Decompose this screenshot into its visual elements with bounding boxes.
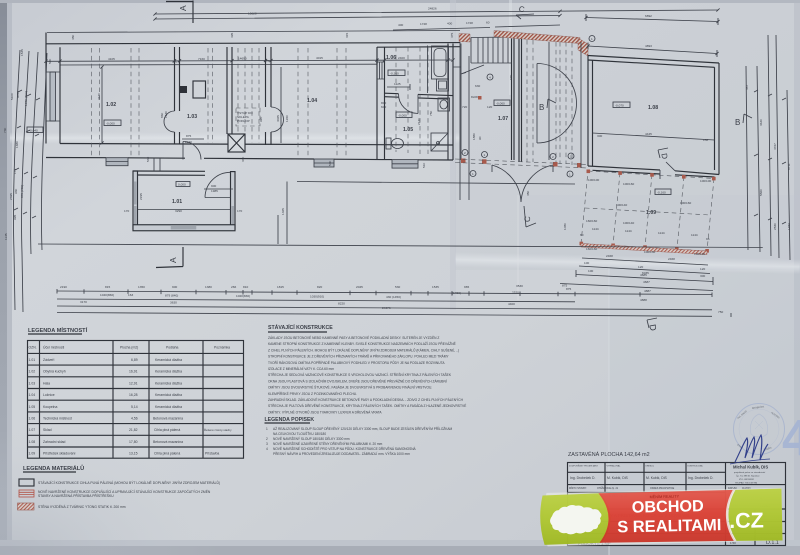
svg-text:160/160: 160/160 (586, 247, 597, 251)
svg-text:Hala: Hala (43, 381, 50, 385)
svg-text:1.04: 1.04 (29, 393, 36, 397)
svg-text:NOVĚ NAVRŽENÉ UZAVŘENÉ STĚNY D: NOVĚ NAVRŽENÉ UZAVŘENÉ STĚNY DŘEVĚNÝMI P… (273, 441, 383, 446)
svg-text:2045: 2045 (356, 285, 363, 289)
svg-text:Podlaha: Podlaha (166, 346, 179, 350)
svg-text:1.09: 1.09 (29, 452, 36, 456)
svg-text:1.07: 1.07 (29, 428, 36, 432)
svg-text:2190: 2190 (60, 285, 67, 289)
svg-text:4445: 4445 (645, 132, 652, 136)
svg-text:266: 266 (231, 285, 236, 289)
svg-text:4: 4 (489, 76, 491, 80)
svg-text:NOVĚ NAVRŽENÉ SCHODIŠTĚ PRO VS: NOVĚ NAVRŽENÉ SCHODIŠTĚ PRO VSTUP NA PŮD… (273, 446, 417, 451)
svg-text:12,91: 12,91 (129, 381, 138, 385)
svg-text:300: 300 (597, 134, 602, 138)
svg-text:1680: 1680 (15, 141, 19, 148)
svg-text:KLEMPÍŘSKÉ PRVKY JSOU Z POZINK: KLEMPÍŘSKÉ PRVKY JSOU Z POZINKOVANÉHO PL… (268, 391, 357, 396)
svg-text:870 (780): 870 (780) (20, 185, 24, 198)
svg-text:15020: 15020 (248, 12, 257, 16)
svg-text:KAMENE STROPNÍ KONSTRUKCE Z KA: KAMENE STROPNÍ KONSTRUKCE Z KAMENNÉ KLEN… (268, 341, 457, 346)
svg-text:3530: 3530 (516, 284, 523, 288)
svg-text:4687: 4687 (643, 280, 650, 284)
svg-text:B: B (735, 118, 740, 127)
svg-text:NA CELKOVOU TLOUŠŤKU 180/180: NA CELKOVOU TLOUŠŤKU 180/180 (273, 431, 326, 436)
svg-text:3630: 3630 (170, 301, 177, 305)
svg-text:3640: 3640 (759, 119, 763, 126)
svg-text:1080: 1080 (563, 223, 567, 230)
svg-text:POKLOP: POKLOP (237, 119, 250, 123)
svg-text:6,89: 6,89 (131, 358, 138, 362)
svg-text:1.02: 1.02 (29, 370, 36, 374)
svg-text:1.03: 1.03 (187, 114, 197, 120)
svg-text:1350: 1350 (138, 285, 145, 289)
svg-text:1.04: 1.04 (307, 98, 317, 104)
svg-text:4893: 4893 (645, 44, 652, 48)
svg-text:-0,160: -0,160 (657, 191, 666, 195)
svg-text:IZOLACE Z MINERÁLNÍ VATY tl. C: IZOLACE Z MINERÁLNÍ VATY tl. CCA 60 mm (268, 367, 334, 371)
svg-text:1.07: 1.07 (498, 116, 508, 122)
svg-text:163: 163 (128, 293, 133, 297)
svg-text:C: C (523, 216, 532, 223)
svg-text:100: 100 (584, 261, 589, 265)
svg-text:Keramická dlažba: Keramická dlažba (155, 381, 182, 385)
svg-text:1815: 1815 (277, 285, 284, 289)
svg-text:OBCHOD: OBCHOD (632, 497, 705, 517)
svg-text:60: 60 (486, 21, 490, 25)
svg-text:995: 995 (13, 215, 17, 220)
svg-text:Zádveří: Zádveří (43, 358, 55, 362)
svg-text:B: B (539, 103, 544, 112)
svg-text:480: 480 (71, 35, 75, 40)
svg-text:13,15: 13,15 (129, 452, 138, 456)
svg-text:1: 1 (472, 172, 474, 176)
svg-text:Plocha (m2): Plocha (m2) (120, 346, 138, 350)
svg-text:-0,360: -0,360 (390, 72, 399, 76)
svg-text:NOVĚ NAVRŽENÝ SLOUP 180/180 DÉ: NOVĚ NAVRŽENÝ SLOUP 180/180 DÉLKY 3300 m… (273, 436, 350, 441)
svg-text:1.09: 1.09 (646, 210, 656, 216)
svg-text:1: 1 (569, 173, 571, 177)
svg-text:OZN.: OZN. (29, 346, 37, 350)
svg-text:100/140: 100/140 (623, 221, 634, 225)
svg-text:16,28: 16,28 (129, 393, 138, 397)
svg-text:Betonová mazanina: Betonová mazanina (153, 417, 183, 421)
svg-text:1144: 1144 (658, 231, 665, 235)
svg-text:1545: 1545 (20, 49, 24, 56)
svg-text:ZASTAVĚNÁ PLOCHA 142,64 m2: ZASTAVĚNÁ PLOCHA 142,64 m2 (568, 450, 650, 458)
svg-text:Keramická dlažba: Keramická dlažba (155, 393, 182, 397)
svg-text:ZODPOVĚDNÝ PROJEKTANT: ZODPOVĚDNÝ PROJEKTANT (569, 465, 598, 468)
svg-text:M. Kubík, DiS: M. Kubík, DiS (607, 476, 628, 480)
svg-text:M. Kubík, DiS: M. Kubík, DiS (646, 476, 667, 480)
svg-text:Čp. 74, 398 51 Sepekov: Čp. 74, 398 51 Sepekov (736, 475, 760, 478)
svg-text:630: 630 (509, 75, 513, 80)
svg-text:100/100: 100/100 (700, 179, 711, 183)
svg-text:1.01: 1.01 (172, 199, 182, 205)
svg-text:5100: 5100 (10, 93, 14, 100)
svg-text:projektová práce ve stavebnict: projektová práce ve stavebnictví (734, 471, 766, 474)
svg-text:(1450): (1450) (452, 291, 461, 295)
svg-text:16,91: 16,91 (129, 370, 138, 374)
svg-text:750: 750 (718, 310, 723, 314)
svg-text:LEGENDA MATERIÁLŮ: LEGENDA MATERIÁLŮ (23, 464, 84, 472)
svg-text:4: 4 (782, 409, 800, 466)
svg-text:Řešené změny stavby: Řešené změny stavby (204, 427, 232, 432)
svg-text:100: 100 (588, 269, 593, 273)
svg-text:.CZ: .CZ (729, 508, 764, 533)
svg-text:5,14: 5,14 (131, 405, 138, 409)
svg-text:170: 170 (124, 209, 129, 213)
svg-text:160/160: 160/160 (586, 219, 597, 223)
svg-text:3170: 3170 (80, 300, 87, 304)
svg-text:1144: 1144 (691, 233, 698, 237)
svg-text:Michal Kubík, DiS: Michal Kubík, DiS (733, 465, 768, 470)
svg-text:900: 900 (172, 285, 177, 289)
svg-text:4105: 4105 (108, 57, 115, 61)
svg-text:Technická místnost: Technická místnost (43, 417, 72, 421)
svg-text:VYPRACOVAL: VYPRACOVAL (607, 465, 622, 468)
svg-text:875: 875 (566, 287, 571, 291)
svg-text:1465: 1465 (281, 208, 285, 215)
svg-text:2140: 2140 (417, 118, 421, 125)
svg-text:D.1.1: D.1.1 (766, 540, 779, 546)
svg-text:2468: 2468 (668, 257, 675, 261)
svg-text:4065: 4065 (276, 115, 280, 122)
svg-text:STĚNA VYZDĚNÁ Z TVÁRNIC YTONG: STĚNA VYZDĚNÁ Z TVÁRNIC YTONG STATIK tl.… (38, 504, 126, 509)
svg-text:Keramická dlažba: Keramická dlažba (155, 358, 182, 362)
svg-text:-0,000: -0,000 (398, 114, 407, 118)
svg-text:8711: 8711 (787, 163, 791, 170)
svg-text:1: 1 (570, 155, 572, 159)
svg-text:400: 400 (447, 22, 452, 26)
svg-text:120: 120 (700, 267, 705, 271)
svg-text:9055: 9055 (16, 91, 20, 98)
svg-text:2040: 2040 (185, 140, 192, 144)
svg-text:1728: 1728 (420, 22, 427, 26)
svg-text:1: 1 (266, 427, 268, 431)
svg-text:Z CIHEL PLNÝCH PÁLENÝCH. MOHOU: Z CIHEL PLNÝCH PÁLENÝCH. MOHOU BÝT LOKÁL… (268, 347, 459, 352)
svg-text:1.08: 1.08 (29, 440, 36, 444)
svg-text:AŽ REALIZOVANÝ SLOUP SLOUP DŘE: AŽ REALIZOVANÝ SLOUP SLOUP DŘEVĚNÝ 120/1… (273, 426, 452, 431)
svg-text:530: 530 (328, 161, 332, 166)
svg-text:900: 900 (211, 184, 216, 188)
svg-text:1.01: 1.01 (29, 358, 36, 362)
svg-text:1380: 1380 (205, 285, 212, 289)
svg-text:530: 530 (146, 157, 150, 162)
svg-text:TVOŘÍ RÁKOSOVÁ OMÍTKA POPŘÍPAD: TVOŘÍ RÁKOSOVÁ OMÍTKA POPŘÍPADĚ PALUBKOV… (268, 360, 445, 365)
svg-text:1370 (800): 1370 (800) (24, 91, 28, 106)
svg-text:4: 4 (266, 447, 268, 451)
svg-text:1880: 1880 (472, 133, 476, 140)
svg-text:4,56: 4,56 (131, 417, 138, 421)
svg-text:1125: 1125 (394, 82, 401, 86)
svg-text:530: 530 (395, 285, 400, 289)
svg-text:3: 3 (266, 442, 268, 446)
svg-text:820: 820 (317, 285, 322, 289)
svg-text:120: 120 (487, 105, 492, 109)
svg-text:2395: 2395 (9, 193, 13, 200)
svg-text:1728: 1728 (466, 21, 473, 25)
svg-text:750: 750 (429, 111, 433, 116)
svg-text:2520: 2520 (512, 291, 519, 295)
svg-text:-0,040: -0,040 (29, 129, 38, 133)
svg-text:Zahradní sklad: Zahradní sklad (43, 440, 66, 444)
svg-text:OKRES PRACHATICE: OKRES PRACHATICE (650, 487, 675, 490)
svg-text:21,82: 21,82 (129, 428, 138, 432)
svg-text:495: 495 (230, 33, 234, 38)
svg-text:LEGENDA MÍSTNOSTÍ: LEGENDA MÍSTNOSTÍ (28, 326, 88, 334)
svg-text:14690: 14690 (238, 57, 247, 61)
svg-text:90: 90 (478, 136, 482, 140)
svg-text:STÁVAJÍCÍ KONSTRUKCE CIHLA PLN: STÁVAJÍCÍ KONSTRUKCE CIHLA PLNÁ PÁLENÁ (… (38, 480, 220, 485)
svg-text:1: 1 (591, 37, 593, 41)
svg-text:8x08: 8x08 (471, 95, 478, 99)
svg-text:Účel místnosti: Účel místnosti (43, 345, 65, 350)
svg-text:4888: 4888 (640, 298, 647, 302)
svg-text:2295: 2295 (139, 193, 143, 200)
svg-text:100/130: 100/130 (644, 250, 655, 254)
svg-text:160: 160 (172, 60, 177, 64)
svg-text:4015: 4015 (316, 56, 323, 60)
svg-text:100/160: 100/160 (680, 201, 691, 205)
svg-text:2830: 2830 (773, 223, 777, 230)
svg-text:1040(860): 1040(860) (100, 293, 114, 297)
svg-text:Keramická dlažba: Keramická dlažba (155, 370, 182, 374)
svg-text:4120: 4120 (97, 93, 101, 100)
svg-text:TEL/FAX: 736 158 994: TEL/FAX: 736 158 994 (735, 482, 758, 485)
svg-text:1144: 1144 (592, 227, 599, 231)
svg-text:6035: 6035 (642, 271, 649, 275)
svg-text:4400: 4400 (508, 302, 515, 306)
svg-text:720: 720 (462, 105, 467, 109)
svg-text:2: 2 (464, 151, 466, 155)
svg-text:980: 980 (375, 58, 379, 63)
svg-text:815: 815 (105, 285, 110, 289)
svg-text:150: 150 (703, 138, 708, 142)
svg-text:600: 600 (381, 105, 386, 109)
svg-text:170: 170 (237, 209, 242, 213)
svg-text:300: 300 (700, 274, 705, 278)
svg-text:-0,060: -0,060 (496, 102, 505, 106)
svg-text:0,000: 0,000 (178, 183, 186, 187)
svg-text:875: 875 (186, 134, 191, 138)
svg-text:2468: 2468 (606, 254, 613, 258)
svg-text:OKNA JSOU PLASTOVÁ S IZOLAČNÍM: OKNA JSOU PLASTOVÁ S IZOLAČNÍM DVOJSKLEM… (268, 378, 447, 383)
svg-text:17,80: 17,80 (129, 440, 138, 444)
svg-text:OMÍTKY. VÝPLNĚ OTVORŮ JSOU TVA: OMÍTKY. VÝPLNĚ OTVORŮ JSOU TVAROVKY LUXF… (268, 409, 382, 414)
svg-text:1: 1 (484, 153, 486, 157)
svg-text:A: A (178, 5, 188, 11)
svg-text:1030(910): 1030(910) (310, 295, 324, 299)
svg-text:810: 810 (243, 285, 248, 289)
svg-text:Koupelna: Koupelna (43, 405, 57, 409)
svg-text:1260: 1260 (285, 115, 289, 122)
svg-text:500: 500 (48, 59, 52, 64)
svg-text:100/140: 100/140 (616, 203, 627, 207)
svg-text:Poznámka: Poznámka (214, 346, 230, 350)
svg-text:Přístřešek skladování: Přístřešek skladování (43, 452, 75, 456)
svg-text:1.05: 1.05 (403, 127, 413, 133)
svg-text:ZAHRADNÍ SKLAD. ZÁKLADOVÉ KONS: ZAHRADNÍ SKLAD. ZÁKLADOVÉ KONSTRUKCE BET… (268, 397, 464, 402)
svg-text:24826: 24826 (428, 7, 437, 11)
svg-text:1144: 1144 (625, 229, 632, 233)
svg-text:Cihla plná pálená: Cihla plná pálená (154, 428, 180, 432)
svg-text:Sklad: Sklad (43, 428, 52, 432)
svg-text:100/100: 100/100 (694, 252, 705, 256)
svg-text:475: 475 (450, 33, 454, 38)
svg-text:24376: 24376 (382, 306, 391, 310)
svg-text:1.03: 1.03 (29, 381, 36, 385)
svg-text:100/100: 100/100 (588, 178, 599, 182)
svg-text:Ložnice: Ložnice (43, 393, 55, 397)
svg-text:4767: 4767 (773, 143, 777, 150)
svg-text:OMÍTKY JSOU DVOUVRSTVÉ ŠTUKOVÉ: OMÍTKY JSOU DVOUVRSTVÉ ŠTUKOVÉ. FASÁDA J… (268, 385, 432, 390)
svg-text:STROPNÍ KONSTRUKCE JE Z DŘEVĚN: STROPNÍ KONSTRUKCE JE Z DŘEVĚNÝCH PŘIZNA… (268, 354, 449, 359)
svg-text:1.06: 1.06 (386, 55, 396, 61)
svg-text:315: 315 (345, 33, 349, 38)
svg-text:IČO: 09210932: IČO: 09210932 (739, 478, 755, 481)
svg-text:Cihla plná pálená: Cihla plná pálená (154, 452, 180, 456)
svg-text:PŘESNÝ NÁVRH A PROVEDENÍ ZREAL: PŘESNÝ NÁVRH A PROVEDENÍ ZREALIZUJE DODA… (273, 451, 410, 456)
svg-text:KRESLIL: KRESLIL (646, 466, 655, 468)
svg-text:Přístavba: Přístavba (205, 452, 219, 456)
svg-text:430 (1450): 430 (1450) (386, 295, 401, 299)
svg-text:60: 60 (580, 233, 584, 237)
svg-text:A: A (168, 257, 178, 263)
svg-text:STŘECHA JE PULTOVÁ DŘEVĚNÉ KON: STŘECHA JE PULTOVÁ DŘEVĚNÉ KONSTRUKCE, K… (268, 403, 467, 408)
svg-text:1.05: 1.05 (29, 405, 36, 409)
svg-text:400: 400 (398, 23, 403, 27)
svg-text:1985: 1985 (211, 189, 218, 193)
svg-text:630: 630 (475, 84, 480, 88)
svg-text:330: 330 (241, 157, 245, 162)
svg-text:LEGENDA POPISEK: LEGENDA POPISEK (265, 417, 315, 423)
svg-text:Betonová mazanina: Betonová mazanina (153, 440, 183, 444)
svg-text:1640: 1640 (164, 111, 168, 118)
svg-text:2: 2 (266, 437, 268, 441)
svg-text:Ing. Drobeček D.: Ing. Drobeček D. (688, 476, 713, 480)
svg-text:8220: 8220 (338, 302, 345, 306)
svg-text:879 (840): 879 (840) (165, 294, 178, 298)
svg-text:2: 2 (552, 155, 554, 159)
svg-text:1.02: 1.02 (106, 102, 116, 108)
svg-text:1.08: 1.08 (648, 105, 658, 111)
svg-text:Obytná kuchyň: Obytná kuchyň (43, 370, 66, 374)
svg-text:170: 170 (264, 59, 269, 63)
svg-text:1535: 1535 (432, 285, 439, 289)
svg-text:457: 457 (745, 85, 749, 90)
svg-text:1135: 1135 (4, 233, 8, 240)
svg-text:175: 175 (13, 169, 17, 174)
svg-text:7160: 7160 (198, 57, 205, 61)
svg-text:1020(830): 1020(830) (236, 294, 250, 298)
svg-text:6892: 6892 (645, 14, 652, 18)
svg-text:MÍSTO STAVBY:: MÍSTO STAVBY: (569, 487, 587, 490)
svg-text:510: 510 (422, 163, 426, 168)
svg-text:100/160: 100/160 (623, 182, 634, 186)
svg-text:730: 730 (3, 128, 7, 133)
svg-text:STŘECHA JE SEDLOVÁ VAZNICOVÉ K: STŘECHA JE SEDLOVÁ VAZNICOVÉ KONSTRUKCE … (268, 372, 452, 377)
svg-text:OTĚŠOVICE čp. 21: OTĚŠOVICE čp. 21 (597, 487, 619, 490)
svg-text:1.06: 1.06 (29, 417, 36, 421)
svg-text:-0,000: -0,000 (106, 122, 115, 126)
svg-text:STÁVAJÍCÍ KONSTRUKCE: STÁVAJÍCÍ KONSTRUKCE (268, 323, 333, 331)
svg-text:450: 450 (526, 191, 530, 196)
svg-text:4887: 4887 (644, 289, 651, 293)
svg-text:Keramická dlažba: Keramická dlažba (155, 405, 182, 409)
svg-text:STAVBY A NAVRŽENÁ PŘÍSTAVBA PŘ: STAVBY A NAVRŽENÁ PŘÍSTAVBA PŘÍSTŘEŠKU (38, 493, 114, 498)
svg-text:Ing. Drobeček D.: Ing. Drobeček D. (570, 476, 595, 480)
svg-text:95: 95 (706, 237, 710, 241)
svg-text:5860: 5860 (759, 189, 763, 196)
svg-text:1789: 1789 (787, 223, 791, 230)
svg-text:965: 965 (464, 285, 469, 289)
svg-text:930: 930 (14, 189, 18, 194)
svg-text:KONTROLOVAL: KONTROLOVAL (688, 465, 704, 468)
svg-text:920: 920 (259, 117, 263, 122)
svg-text:2400: 2400 (398, 56, 405, 60)
svg-text:ZÁKLADY JSOU BETONOVÉ NEBO KAM: ZÁKLADY JSOU BETONOVÉ NEBO KAMENNÉ PASY … (268, 335, 439, 340)
svg-text:-0,070: -0,070 (615, 104, 624, 108)
svg-text:S REALITAMI: S REALITAMI (617, 516, 722, 536)
svg-text:120: 120 (638, 265, 643, 269)
